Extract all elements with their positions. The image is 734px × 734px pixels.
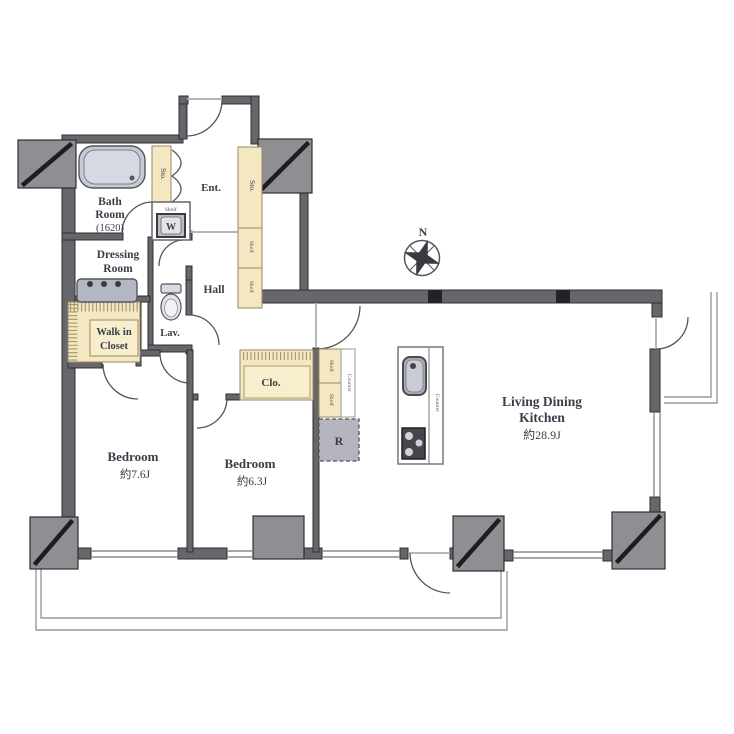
compass-icon <box>398 234 446 282</box>
floorplan: N Bath Room (1620) Sto. Ent. Sto. Shelf … <box>0 0 734 734</box>
floorplan-canvas: N Bath Room (1620) Sto. Ent. Sto. Shelf … <box>0 0 734 734</box>
sink-fixture <box>403 357 426 395</box>
lavatory-label: Lav. <box>160 328 180 339</box>
bedroom2-label: Bedroom <box>224 456 275 471</box>
dressing-label-1: Dressing <box>97 249 140 261</box>
wic-label-1: Walk in <box>96 327 131 338</box>
windows <box>91 412 660 558</box>
shelf-kitchen-lower-label: Shelf <box>328 394 333 406</box>
bedroom2-size: 約6.3J <box>237 474 268 488</box>
shelf-entry-lower-label: Shelf <box>248 281 253 293</box>
bath-size: (1620) <box>96 223 124 234</box>
bathtub-fixture <box>79 146 145 188</box>
closet-label: Clo. <box>261 377 281 389</box>
hall-label: Hall <box>203 284 224 296</box>
sto-entry-label: Sto. <box>248 180 257 192</box>
shelf-kitchen-upper-label: Shelf <box>328 360 333 372</box>
vanity-fixture <box>77 279 137 302</box>
wic-label-2: Closet <box>100 341 128 352</box>
shelf-laundry-label: Shelf <box>165 208 177 213</box>
dressing-label-2: Room <box>103 263 133 275</box>
balcony-east <box>664 292 717 403</box>
counter-island-label: Counter <box>434 394 439 412</box>
washer-label: W <box>166 222 176 233</box>
bath-label-1: Bath <box>98 196 122 208</box>
ldk-size: 約28.9J <box>523 427 561 442</box>
bedroom1-label: Bedroom <box>107 449 158 464</box>
stove-fixture <box>402 428 425 459</box>
ldk-label-2: Kitchen <box>519 410 565 425</box>
bedroom1-size: 約7.6J <box>120 467 151 481</box>
toilet-fixture <box>161 284 181 320</box>
bath-label-2: Room <box>95 209 125 221</box>
north-label: N <box>419 225 428 239</box>
ldk-label-1: Living Dining <box>502 394 582 409</box>
balcony-south <box>36 568 507 630</box>
sto-bath-label: Sto. <box>159 168 168 180</box>
counter-wall-label: Counter <box>346 374 351 392</box>
entrance-label: Ent. <box>201 182 221 194</box>
refrigerator-label: R <box>335 434 344 448</box>
shelf-entry-upper-label: Shelf <box>248 241 253 253</box>
